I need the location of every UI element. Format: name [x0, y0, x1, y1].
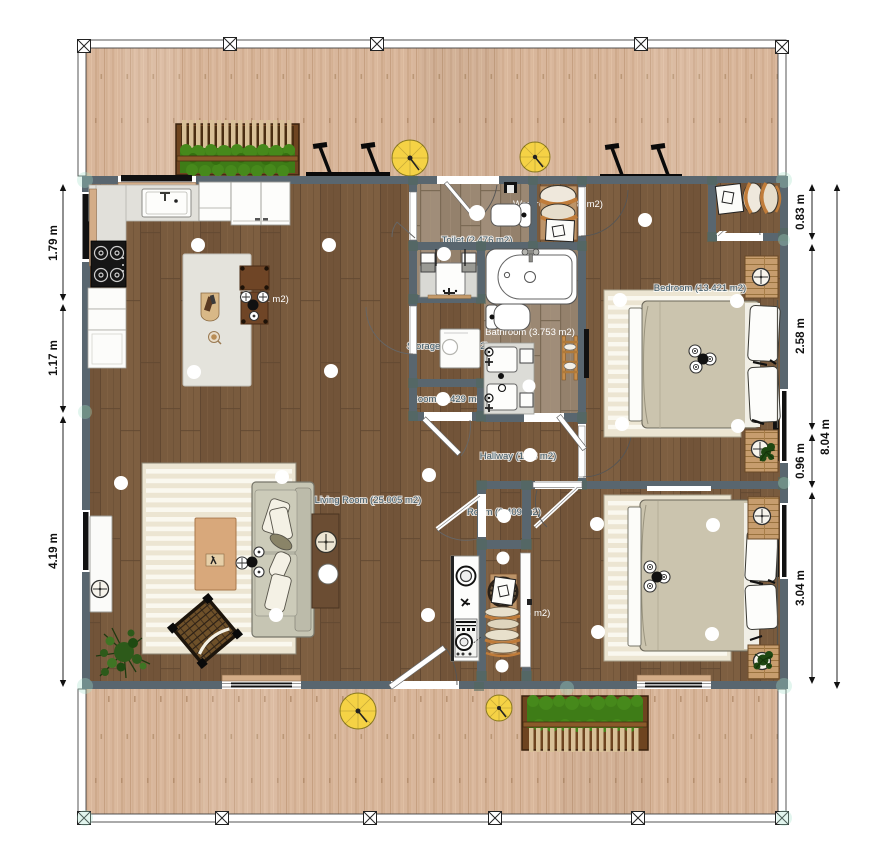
svg-text:2.58 m: 2.58 m: [795, 318, 807, 354]
svg-text:Living Room (25.005 m2): Living Room (25.005 m2): [315, 495, 422, 506]
svg-text:1.79 m: 1.79 m: [48, 225, 60, 261]
svg-text:1.17 m: 1.17 m: [48, 340, 60, 376]
svg-text:0.96 m: 0.96 m: [795, 443, 807, 479]
svg-text:8.04 m: 8.04 m: [820, 419, 832, 455]
svg-text:3.04 m: 3.04 m: [795, 570, 807, 606]
svg-text:Bedroom (13.421 m2): Bedroom (13.421 m2): [654, 283, 746, 294]
svg-text:4.19 m: 4.19 m: [48, 533, 60, 569]
svg-text:Hallway (1.48 m2): Hallway (1.48 m2): [480, 451, 557, 462]
svg-text:0.83 m: 0.83 m: [795, 194, 807, 230]
